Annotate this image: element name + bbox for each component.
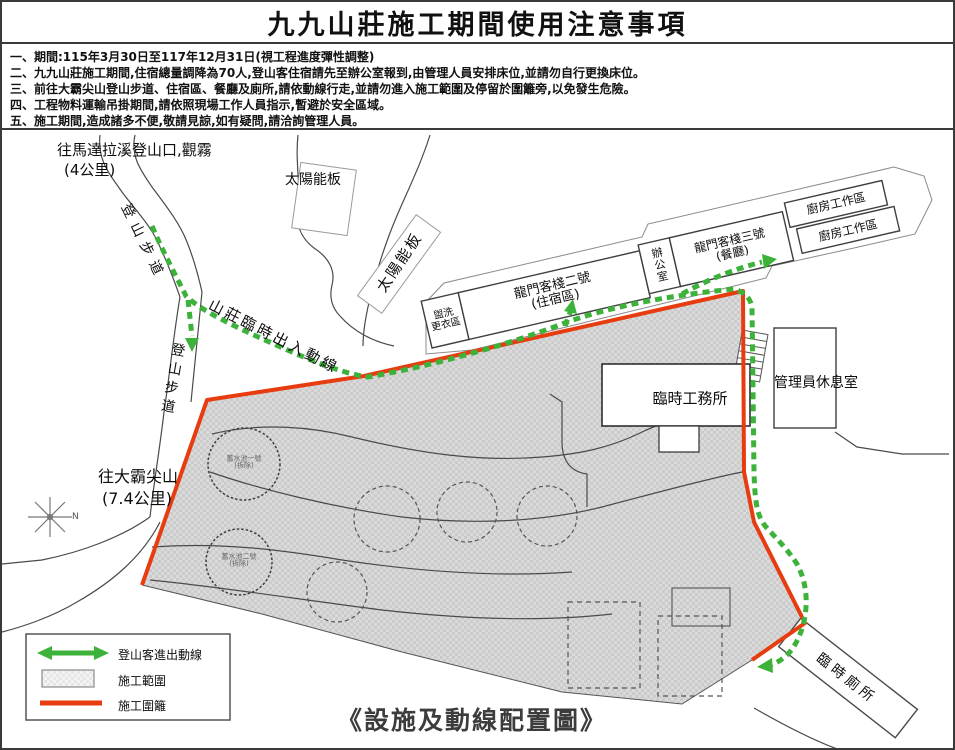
page-title: 九九山莊施工期間使用注意事項 (2, 2, 953, 44)
label-dabajian-distance: (7.4公里) (102, 485, 172, 509)
note-item-2: 二、九九山莊施工期間,住宿總量調降為70人,登山客住宿請先至辦公室報到,由管理人… (10, 65, 953, 81)
note-item-4: 四、工程物料運輸吊掛期間,請依照現場工作人員指示,暫避於安全區域。 (10, 97, 953, 113)
notes-panel: 一、期間:115年3月30日至117年12月31日(視工程進度彈性調整) 二、九… (2, 44, 953, 130)
label-site-office: 臨時工務所 (652, 388, 727, 409)
legend-label-area: 施工範圍 (118, 672, 166, 689)
note-item-5: 五、施工期間,造成諸多不便,敬請見諒,如有疑問,請洽詢管理人員。 (10, 113, 953, 129)
label-tank-1: 蓄水池一號 (拆除) (227, 456, 262, 471)
label-trailhead-distance: (4公里) (64, 159, 115, 180)
note-item-1: 一、期間:115年3月30日至117年12月31日(視工程進度彈性調整) (10, 49, 953, 65)
site-office-annex (659, 426, 699, 452)
label-north: N (72, 512, 79, 522)
map-caption: 《設施及動線配置圖》 (337, 701, 607, 737)
label-dabajian-destination: 往大霸尖山 (98, 463, 178, 487)
label-trailhead-destination: 往馬達拉溪登山口,觀霧 (57, 139, 212, 160)
note-item-3: 三、前往大霸尖山登山步道、住宿區、餐廳及廁所,請依動線行走,並請勿進入施工範圍及… (10, 81, 953, 97)
label-manager-room: 管理員休息室 (774, 372, 858, 392)
label-solar-panel-1: 太陽能板 (285, 169, 341, 189)
legend-label-route: 登山客進出動線 (118, 646, 202, 663)
compass-star (28, 497, 72, 537)
legend-label-fence: 施工圍籬 (118, 697, 166, 714)
legend-area-swatch (42, 670, 94, 687)
label-tank-2: 蓄水池二號 (拆除) (222, 554, 257, 569)
notice-poster: 九九山莊施工期間使用注意事項 一、期間:115年3月30日至117年12月31日… (0, 0, 955, 750)
